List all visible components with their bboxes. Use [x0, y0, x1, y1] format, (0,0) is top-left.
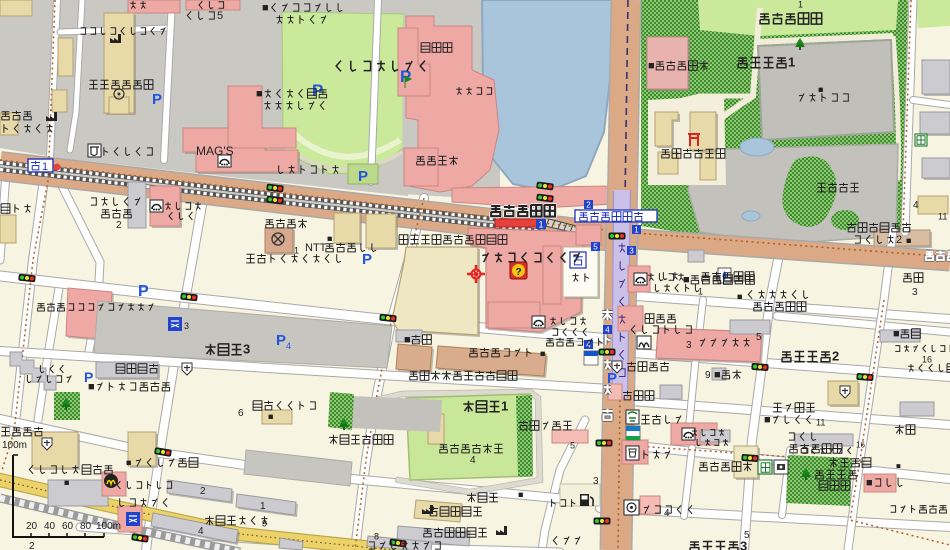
svg-text:P: P: [312, 81, 323, 100]
svg-text:■: ■: [893, 328, 900, 340]
svg-text:4: 4: [605, 326, 610, 335]
svg-text:9: 9: [262, 518, 267, 528]
svg-text:3: 3: [629, 247, 634, 256]
svg-text:■: ■: [764, 414, 771, 426]
svg-text:■: ■: [327, 233, 332, 243]
svg-text:P: P: [362, 251, 372, 268]
svg-text:P: P: [152, 91, 162, 108]
svg-text:■: ■: [126, 457, 131, 467]
svg-text:■: ■: [404, 334, 411, 346]
svg-text:1: 1: [260, 501, 266, 512]
svg-text:P: P: [276, 332, 286, 349]
svg-text:■: ■: [906, 235, 911, 245]
svg-text:3: 3: [912, 287, 918, 298]
svg-text:1: 1: [798, 0, 803, 9]
svg-text:11: 11: [938, 211, 947, 221]
svg-text:?: ?: [515, 267, 521, 278]
svg-text:100m: 100m: [2, 440, 27, 451]
svg-text:1: 1: [634, 226, 639, 235]
svg-text:■: ■: [648, 60, 655, 72]
svg-text:2: 2: [586, 201, 591, 210]
svg-text:16: 16: [856, 441, 865, 450]
svg-text:1: 1: [42, 161, 48, 173]
svg-text:■: ■: [540, 348, 545, 358]
svg-text:■: ■: [518, 489, 523, 499]
svg-text:100m: 100m: [96, 521, 121, 532]
svg-text:1: 1: [294, 245, 299, 255]
svg-text:80: 80: [80, 521, 92, 532]
svg-text:■: ■: [737, 291, 742, 301]
svg-text:2: 2: [200, 486, 206, 497]
svg-text:4: 4: [470, 455, 476, 466]
svg-text:1: 1: [698, 286, 703, 296]
svg-text:P: P: [607, 370, 617, 387]
svg-text:1: 1: [788, 55, 795, 70]
svg-text:■: ■: [64, 477, 69, 487]
svg-text:■: ■: [714, 369, 721, 381]
svg-text:P: P: [358, 168, 368, 185]
svg-text:16: 16: [922, 354, 932, 364]
svg-text:4: 4: [198, 526, 204, 537]
svg-text:60: 60: [62, 521, 74, 532]
svg-text:20: 20: [26, 521, 38, 532]
svg-text:5: 5: [217, 10, 223, 22]
svg-text:2: 2: [832, 349, 839, 364]
svg-text:■: ■: [683, 274, 690, 286]
svg-text:11: 11: [816, 417, 825, 427]
svg-text:■: ■: [268, 411, 273, 421]
svg-text:1: 1: [501, 399, 508, 414]
svg-text:■: ■: [256, 88, 263, 100]
svg-text:■: ■: [262, 2, 269, 14]
svg-text:■: ■: [818, 84, 823, 94]
svg-text:4: 4: [286, 341, 291, 351]
svg-text:MAG'S: MAG'S: [196, 144, 234, 158]
svg-text:2: 2: [116, 220, 122, 231]
svg-text:2: 2: [29, 541, 35, 550]
svg-text:1: 1: [538, 220, 543, 230]
svg-text:■: ■: [866, 477, 873, 489]
svg-text:40: 40: [44, 521, 56, 532]
svg-text:NTT: NTT: [305, 242, 327, 254]
svg-text:3: 3: [243, 342, 250, 357]
svg-text:5: 5: [756, 332, 762, 343]
svg-text:P: P: [138, 283, 149, 300]
svg-text:2: 2: [896, 234, 902, 246]
svg-text:4: 4: [664, 508, 670, 519]
svg-text:3: 3: [593, 476, 599, 487]
svg-text:8: 8: [374, 531, 379, 541]
svg-text:5: 5: [593, 243, 598, 252]
svg-text:4: 4: [913, 200, 919, 211]
svg-text:3: 3: [740, 539, 747, 550]
svg-text:3: 3: [686, 340, 692, 351]
svg-text:9: 9: [705, 370, 711, 381]
svg-text:6: 6: [238, 408, 244, 419]
svg-text:■: ■: [88, 381, 95, 393]
svg-text:5: 5: [570, 440, 575, 450]
svg-text:■: ■: [896, 462, 901, 471]
svg-text:3: 3: [184, 321, 189, 331]
